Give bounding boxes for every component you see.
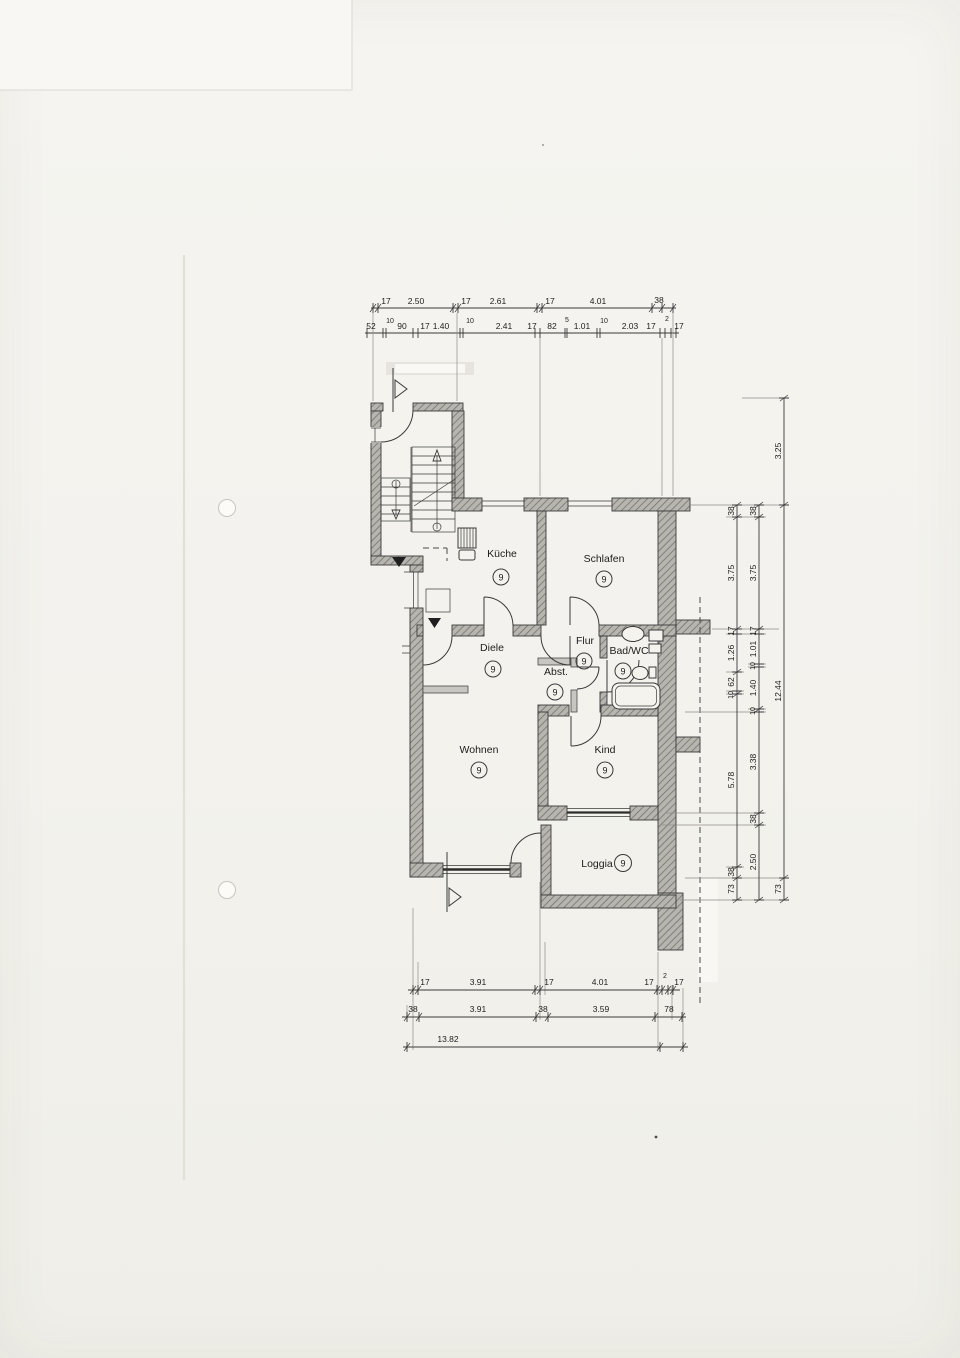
- room-mark: 9: [620, 667, 625, 677]
- dim-label: 2: [665, 316, 669, 323]
- interior-wall: [513, 625, 541, 636]
- loggia-door: [511, 833, 541, 863]
- overhead-dashed-line: [423, 548, 447, 561]
- dim-label: 17: [381, 296, 391, 306]
- stair-window-opening: [369, 427, 383, 443]
- dim-label: 38: [408, 1004, 418, 1014]
- room-mark: 9: [498, 573, 503, 583]
- room-mark: 9: [490, 665, 495, 675]
- loggia-parapet: [541, 895, 676, 908]
- dim-label: 10: [386, 318, 394, 325]
- dim-label: 38: [538, 1004, 548, 1014]
- wohnen-kind-wall: [538, 712, 548, 818]
- room-mark: 9: [601, 575, 606, 585]
- room-mark: 9: [602, 766, 607, 776]
- dim-label: 2.50: [408, 296, 425, 306]
- dim-label: 10: [466, 318, 474, 325]
- dim-label: 62: [726, 677, 736, 687]
- exterior-wall-top: [524, 498, 568, 511]
- scan-artifacts: [0, 0, 718, 1180]
- exterior-wall-top: [452, 498, 482, 511]
- schlafen-door: [570, 597, 599, 625]
- section-marker-triangle: [428, 618, 441, 628]
- loggia-left-wall: [541, 825, 551, 895]
- right-dimension-chains: 38 3.75 17 1.26 62 10 5.78 38 73 38 3.75…: [662, 395, 789, 903]
- exterior-wall-right: [658, 511, 676, 895]
- dim-label: 52: [366, 321, 376, 331]
- dim-label: 10: [750, 707, 757, 715]
- room-label-abst: Abst.: [544, 666, 568, 678]
- ink-speck: [542, 144, 544, 146]
- scanned-floor-plan-page: 17 2.50 17 2.61 17 4.01 38 52 10 90 17 1…: [0, 0, 960, 1358]
- room-mark: 9: [476, 766, 481, 776]
- dim-label: 5.78: [726, 771, 736, 788]
- room-label-kueche: Küche: [487, 548, 517, 560]
- service-shaft: [649, 644, 661, 653]
- wohnen-exterior-wall: [410, 863, 443, 877]
- dim-label: 3.91: [470, 1004, 487, 1014]
- dim-label: 10: [728, 691, 735, 699]
- dim-label: 1.26: [726, 644, 736, 661]
- room-label-diele: Diele: [480, 642, 504, 654]
- room-mark: 9: [552, 688, 557, 698]
- dim-label: 2: [663, 973, 667, 980]
- dim-label: 17: [420, 321, 430, 331]
- exterior-wall-left: [410, 565, 423, 572]
- page-corner-edge: [0, 0, 352, 90]
- dim-label: 38: [726, 506, 736, 516]
- section-flag-icon: [395, 380, 407, 398]
- room-mark: 9: [620, 859, 625, 869]
- dim-label: 1.01: [748, 640, 758, 657]
- stair-right-wall: [452, 411, 464, 503]
- room-label-bad-wc: Bad/WC: [609, 645, 649, 657]
- dim-label: 3.75: [726, 564, 736, 581]
- top-dimension-chains: 17 2.50 17 2.61 17 4.01 38 52 10 90 17 1…: [365, 295, 684, 496]
- page-corner-overlay: [0, 0, 352, 90]
- abst-door: [577, 667, 599, 689]
- dim-label: 78: [664, 1004, 674, 1014]
- ink-speck: [655, 1136, 658, 1139]
- dim-label: 17: [545, 296, 555, 306]
- dim-label: 3.91: [470, 977, 487, 987]
- dim-label: 12.44: [773, 680, 783, 702]
- dim-label: 2.41: [496, 321, 513, 331]
- radiator-valve: [459, 550, 475, 560]
- dim-label: 3.38: [748, 753, 758, 770]
- whiteout-patch: [395, 364, 465, 373]
- room-label-flur: Flur: [576, 635, 595, 647]
- washbasin: [622, 627, 644, 642]
- flur-bad-wall: [600, 636, 607, 658]
- dim-label: 17: [748, 626, 758, 636]
- dim-label: 17: [527, 321, 537, 331]
- stairwell: [369, 403, 464, 567]
- toilet: [632, 667, 648, 680]
- dim-label: 73: [726, 884, 736, 894]
- kueche-door: [484, 597, 513, 625]
- dim-label: 1.40: [748, 679, 758, 696]
- dim-label: 3.59: [593, 1004, 610, 1014]
- kind-loggia-wall: [538, 806, 567, 820]
- stair-flight-lower: [381, 478, 410, 521]
- dim-label: 17: [420, 977, 430, 987]
- dim-label: 17: [461, 296, 471, 306]
- punch-hole-top: [219, 500, 236, 517]
- room-label-schlafen: Schlafen: [584, 553, 625, 565]
- service-shaft: [649, 630, 663, 641]
- dim-label: 38: [748, 814, 758, 824]
- whiteout-streak: [698, 878, 718, 982]
- dim-label: 90: [397, 321, 407, 331]
- interior-wall: [417, 625, 423, 636]
- room-label-kind: Kind: [594, 744, 615, 756]
- dim-label: 38: [654, 295, 664, 305]
- party-wall-stub: [676, 737, 700, 752]
- dim-label: 17: [646, 321, 656, 331]
- dim-label-total-width: 13.82: [437, 1034, 459, 1044]
- dim-label: 2.61: [490, 296, 507, 306]
- section-flag-icon: [449, 888, 461, 906]
- exterior-wall-top: [612, 498, 690, 511]
- bathtub: [612, 683, 660, 709]
- dim-label: 17: [674, 321, 684, 331]
- dim-label: 17: [674, 977, 684, 987]
- room-mark: 9: [581, 657, 586, 667]
- entry-door-arc: [423, 636, 452, 665]
- dim-label: 38: [726, 867, 736, 877]
- stair-top-wall: [413, 403, 463, 411]
- dim-label: 3.75: [748, 564, 758, 581]
- kueche-schlafen-wall: [537, 511, 546, 625]
- room-label-loggia: Loggia: [581, 858, 613, 870]
- apartment-walls: [402, 498, 710, 950]
- dim-label: 10: [750, 662, 757, 670]
- dim-label: 2.50: [748, 853, 758, 870]
- diele-wohnen-stub-wall: [423, 686, 468, 693]
- dim-label: 5: [565, 317, 569, 324]
- stair-entry-door-arc: [381, 410, 413, 442]
- diele-closet: [426, 589, 450, 612]
- toilet-cistern: [649, 667, 656, 678]
- room-label-wohnen: Wohnen: [460, 744, 499, 756]
- dim-label: 10: [600, 318, 608, 325]
- dim-label: 1.01: [574, 321, 591, 331]
- dim-label: 82: [547, 321, 557, 331]
- dim-label: 4.01: [592, 977, 609, 987]
- dim-label: 4.01: [590, 296, 607, 306]
- dim-label: 2.03: [622, 321, 639, 331]
- dim-label: 73: [773, 884, 783, 894]
- dim-label: 3.25: [773, 442, 783, 459]
- dim-label: 1.40: [433, 321, 450, 331]
- dim-label: 17: [544, 977, 554, 987]
- stair-top-wall: [371, 403, 383, 411]
- kind-door: [571, 716, 601, 746]
- party-wall-stub: [676, 620, 710, 634]
- wohnen-exterior-wall: [510, 863, 521, 877]
- abst-right-wall: [571, 690, 577, 712]
- kind-loggia-wall: [630, 806, 658, 820]
- exterior-wall-left: [410, 608, 423, 877]
- dim-label: 17: [644, 977, 654, 987]
- interior-wall: [452, 625, 484, 636]
- dim-label: 17: [726, 626, 736, 636]
- dim-label: 38: [748, 506, 758, 516]
- smudge: [386, 362, 474, 375]
- stair-treads: [412, 456, 455, 519]
- punch-hole-bottom: [219, 882, 236, 899]
